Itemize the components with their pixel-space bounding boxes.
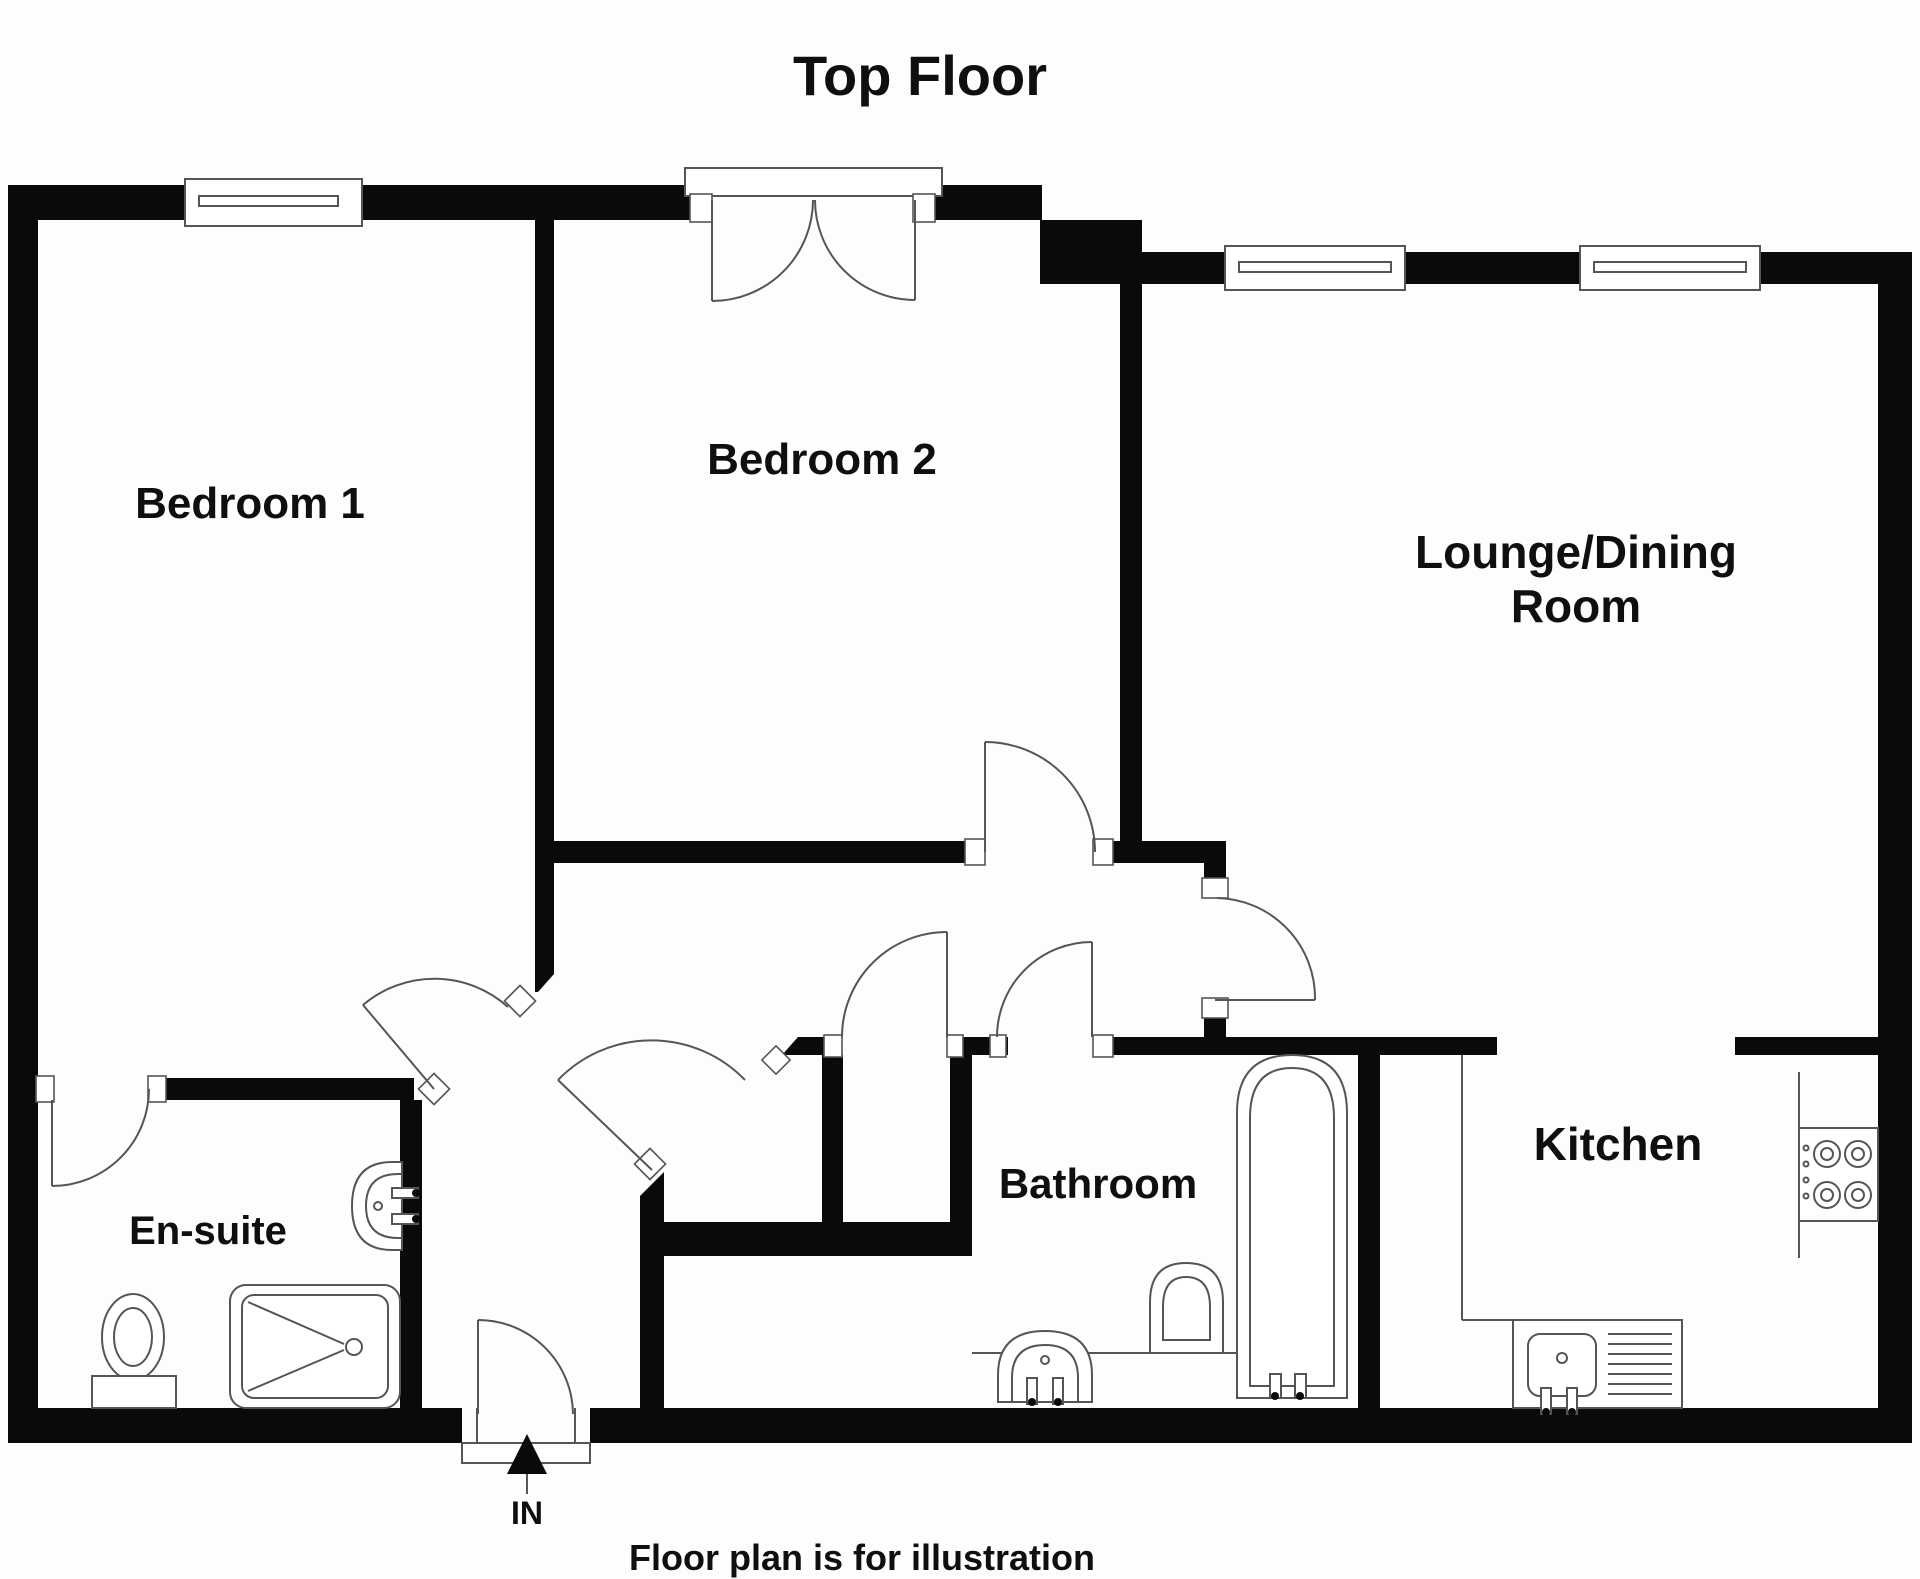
bottom-wall-segment <box>590 1408 1912 1443</box>
bedroom1-label: Bedroom 1 <box>135 479 365 528</box>
bottom-wall-segment <box>8 1408 462 1443</box>
ensuite-top-wall <box>164 1078 414 1100</box>
bathroom-right-wall <box>1358 1055 1380 1408</box>
kitchen-label: Kitchen <box>1534 1118 1703 1170</box>
right-wall <box>1878 252 1912 1443</box>
cupboard-right-wall <box>950 1055 972 1222</box>
lounge-label-line2: Room <box>1511 580 1641 632</box>
corridor-top-wall <box>1113 841 1226 863</box>
bathroom-basin <box>998 1331 1092 1406</box>
lounge-top-wall-segment <box>1405 252 1580 284</box>
bedroom2-bottom-wall <box>554 841 967 863</box>
bedroom-divider-wall <box>535 220 554 960</box>
entrance-in-label: IN <box>511 1495 543 1531</box>
bathroom-kitchen-top-wall <box>1110 1037 1497 1055</box>
corridor-bottom-wall-end <box>782 1037 824 1055</box>
lounge-door <box>1202 878 1315 1018</box>
bathroom-toilet <box>1150 1263 1223 1353</box>
store-top-wall <box>664 1222 972 1256</box>
lounge-label-line1: Lounge/Dining <box>1415 526 1737 578</box>
cupboard-door <box>824 932 963 1057</box>
window-lounge-2 <box>1580 246 1760 290</box>
ensuite-label: En-suite <box>129 1209 287 1253</box>
ensuite-toilet <box>92 1294 176 1408</box>
hall-right-wall <box>640 1196 664 1408</box>
drainer-lines <box>1608 1334 1672 1394</box>
footer-note: Floor plan is for illustration <box>629 1537 1095 1578</box>
window-lounge-1 <box>1225 246 1405 290</box>
ensuite-shower <box>230 1285 400 1408</box>
ensuite-door <box>36 1076 166 1186</box>
top-wall-segment <box>362 185 712 220</box>
lounge-left-wall <box>1120 284 1142 841</box>
bedroom2-door <box>965 742 1113 865</box>
hall-door <box>558 1040 790 1179</box>
bedroom-divider-wall-end <box>535 960 554 992</box>
kitchen-worktop-lines <box>1462 1055 1799 1320</box>
kitchen-hob <box>1799 1128 1878 1221</box>
inner-walls <box>38 220 1878 1408</box>
lounge-door-stub <box>1204 1018 1226 1037</box>
window-bedroom1 <box>185 179 362 226</box>
left-wall <box>8 185 38 1443</box>
bathroom-door <box>990 942 1113 1057</box>
page-title: Top Floor <box>793 44 1047 107</box>
bathroom-label: Bathroom <box>999 1160 1197 1207</box>
cupboard-left-wall <box>822 1055 843 1222</box>
kitchen-sink <box>1513 1320 1682 1416</box>
bathtub <box>1237 1055 1347 1400</box>
floor-plan-page: Top Floor Bedroom 1 Bedroom 2 Lounge/Din… <box>0 0 1920 1579</box>
top-wall-step <box>1040 220 1142 284</box>
lounge-top-wall-segment <box>1142 252 1225 284</box>
bedroom2-label: Bedroom 2 <box>707 435 937 484</box>
floor-plan-svg: Top Floor Bedroom 1 Bedroom 2 Lounge/Din… <box>0 0 1920 1579</box>
ensuite-right-wall <box>400 1100 422 1408</box>
kitchen-top-wall <box>1735 1037 1878 1055</box>
bedroom2-double-door <box>685 168 942 301</box>
